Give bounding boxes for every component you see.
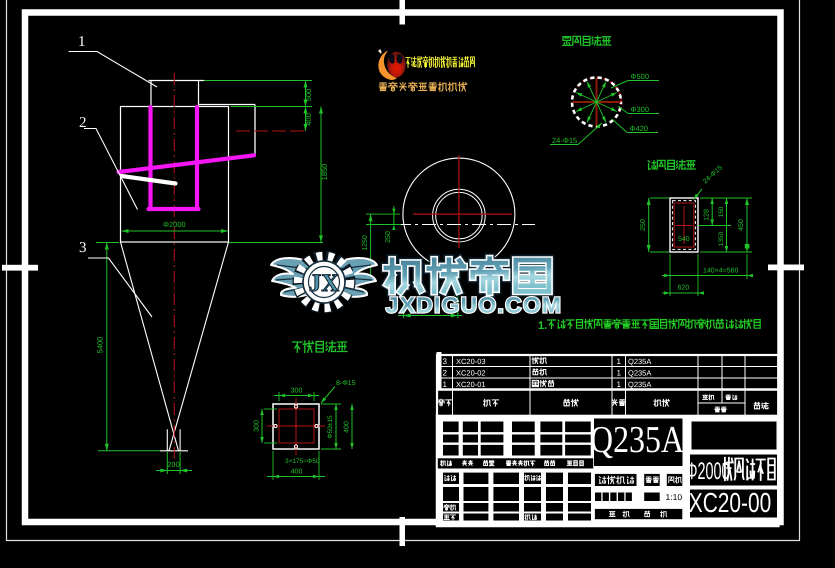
svg-text:400: 400 — [304, 113, 313, 126]
svg-text:出风口法兰: 出风口法兰 — [0, 0, 5, 1]
svg-text:Φ500: Φ500 — [631, 72, 650, 81]
svg-text:3: 3 — [442, 357, 447, 366]
svg-text:300: 300 — [291, 388, 303, 395]
svg-text:Φ50±15: Φ50±15 — [327, 415, 334, 439]
svg-text:140×4=560: 140×4=560 — [703, 268, 739, 275]
svg-text:250: 250 — [385, 231, 392, 243]
svg-text:24-Φ15: 24-Φ15 — [702, 164, 724, 185]
svg-text:400: 400 — [291, 469, 303, 476]
svg-text:1: 1 — [78, 34, 86, 50]
svg-text:250: 250 — [640, 219, 647, 231]
svg-text:XC20-01: XC20-01 — [456, 380, 486, 389]
svg-text:1: 1 — [616, 380, 621, 389]
svg-text:128: 128 — [704, 209, 711, 221]
svg-text:Q235A: Q235A — [628, 380, 651, 389]
svg-text:Q235A: Q235A — [590, 419, 684, 461]
svg-text:1250: 1250 — [362, 235, 369, 251]
svg-text:1: 1 — [442, 380, 447, 389]
svg-text:1: 1 — [616, 368, 621, 377]
svg-text:3: 3 — [79, 240, 87, 256]
svg-text:540: 540 — [678, 236, 690, 243]
svg-text:500: 500 — [304, 89, 313, 102]
svg-text:1.: 1. — [538, 320, 547, 332]
svg-text:JXDIGUO.COM: JXDIGUO.COM — [386, 293, 562, 318]
svg-text:450: 450 — [738, 219, 745, 231]
svg-text:24-Φ15: 24-Φ15 — [552, 136, 577, 145]
svg-text:XC20-03: XC20-03 — [456, 357, 486, 366]
svg-text:150: 150 — [718, 206, 725, 217]
svg-text:8-Φ15: 8-Φ15 — [336, 380, 356, 387]
svg-text:Q235A: Q235A — [628, 357, 651, 366]
svg-text:Φ420: Φ420 — [630, 124, 649, 133]
svg-text:Φ300: Φ300 — [631, 105, 650, 114]
svg-text:1850: 1850 — [320, 164, 329, 181]
svg-text:5400: 5400 — [96, 337, 105, 354]
svg-text:XC20-02: XC20-02 — [456, 368, 486, 377]
svg-text:400: 400 — [344, 421, 351, 433]
svg-text:2: 2 — [442, 368, 447, 377]
svg-text:620: 620 — [678, 285, 690, 292]
svg-text:JX: JX — [309, 270, 340, 297]
svg-text:1:10: 1:10 — [666, 492, 683, 502]
svg-text:200: 200 — [167, 460, 180, 469]
svg-text:3×175=Φ50: 3×175=Φ50 — [285, 458, 320, 465]
svg-text:1: 1 — [616, 357, 621, 366]
svg-text:XC20-00: XC20-00 — [689, 487, 771, 518]
svg-text:1350: 1350 — [718, 231, 725, 246]
svg-text:Φ2000: Φ2000 — [686, 458, 730, 485]
svg-text:Φ2000: Φ2000 — [163, 220, 186, 229]
svg-text:300: 300 — [254, 420, 261, 432]
svg-text:Q235A: Q235A — [628, 368, 651, 377]
